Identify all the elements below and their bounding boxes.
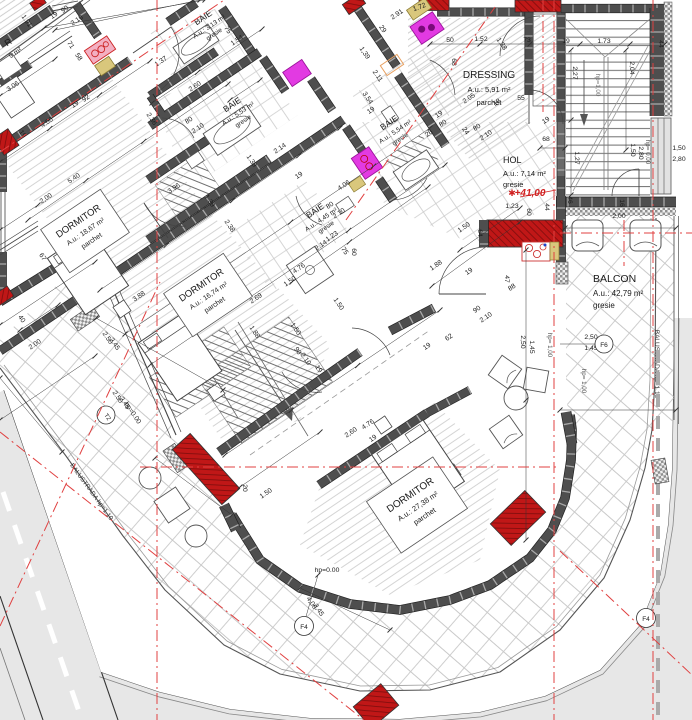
- svg-text:F4: F4: [642, 616, 650, 623]
- svg-text:hp= 0,00: hp= 0,00: [644, 140, 651, 165]
- svg-text:HOL: HOL: [503, 155, 522, 165]
- svg-text:60: 60: [350, 248, 357, 256]
- svg-text:2,80: 2,80: [637, 146, 644, 159]
- svg-text:1,27: 1,27: [573, 151, 580, 164]
- svg-text:50: 50: [446, 37, 454, 44]
- svg-text:1,50: 1,50: [629, 143, 636, 156]
- svg-text:73: 73: [523, 37, 531, 44]
- svg-text:+41,00: +41,00: [515, 188, 546, 199]
- svg-text:F6: F6: [600, 342, 608, 349]
- svg-text:20: 20: [241, 484, 248, 492]
- svg-text:1.73: 1.73: [597, 38, 610, 45]
- svg-text:F4: F4: [300, 624, 308, 631]
- svg-text:2,27: 2,27: [571, 66, 578, 79]
- svg-text:A.u.: 42,79 m²: A.u.: 42,79 m²: [593, 289, 644, 298]
- svg-text:2,04: 2,04: [628, 61, 635, 74]
- svg-text:2,80: 2,80: [672, 156, 685, 163]
- svg-text:1,23: 1,23: [505, 203, 518, 210]
- svg-text:hp= 1,00: hp= 1,00: [546, 333, 553, 358]
- svg-text:hp=0.00: hp=0.00: [315, 567, 340, 574]
- svg-text:DRESSING: DRESSING: [463, 70, 515, 81]
- svg-text:44: 44: [657, 40, 664, 48]
- svg-text:BALCON: BALCON: [593, 273, 636, 285]
- svg-text:hp=1,00: hp=1,00: [594, 74, 601, 97]
- svg-text:68: 68: [542, 136, 550, 143]
- svg-text:19: 19: [562, 38, 570, 45]
- svg-text:60: 60: [525, 208, 532, 216]
- svg-text:BALUSTRADA hp=1.10: BALUSTRADA hp=1.10: [653, 330, 660, 399]
- svg-text:2,50: 2,50: [519, 335, 526, 348]
- svg-text:gresie: gresie: [593, 301, 615, 310]
- svg-text:2,00: 2,00: [612, 213, 625, 220]
- svg-text:hp= 1,00: hp= 1,00: [580, 369, 587, 394]
- svg-text:16: 16: [618, 199, 625, 207]
- svg-text:47: 47: [503, 275, 510, 283]
- svg-text:44: 44: [543, 203, 550, 211]
- svg-text:1,45: 1,45: [528, 340, 535, 353]
- svg-text:64: 64: [476, 229, 483, 237]
- svg-text:55: 55: [517, 95, 525, 102]
- svg-text:1.52: 1.52: [474, 36, 487, 43]
- svg-text:1,50: 1,50: [672, 145, 685, 152]
- svg-text:A.u.: 5,91 m²: A.u.: 5,91 m²: [468, 85, 511, 94]
- svg-text:46: 46: [566, 196, 573, 204]
- svg-text:A.u.: 7,14 m²: A.u.: 7,14 m²: [503, 169, 546, 178]
